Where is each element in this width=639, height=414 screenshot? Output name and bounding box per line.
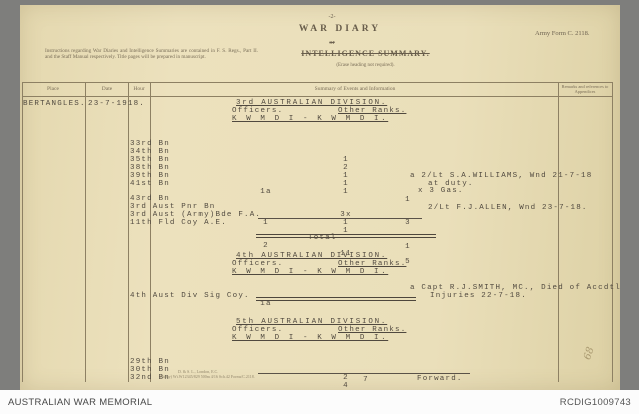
remark-note: a Capt R.J.SMITH, MC., Died of Accdtl	[410, 284, 621, 292]
table-row: 30th Bn 4	[130, 358, 430, 366]
column-header-hour: Hour	[128, 86, 150, 92]
casualty-key-row: K W M D I - K W M D I.	[232, 268, 388, 276]
casualty-key-row: K W M D I - K W M D I.	[232, 115, 388, 123]
column-header-summary: Summary of Events and Information	[250, 86, 460, 92]
entry-place: BERTANGLES.	[23, 100, 86, 108]
remark-note: a 2/Lt S.A.WILLIAMS, Wnd 21-7-18	[410, 172, 592, 180]
table-row: 43rd Bn 3x 3	[130, 187, 430, 195]
archive-footer-bar: AUSTRALIAN WAR MEMORIAL RCDIG1009743	[0, 390, 639, 414]
table-row: 4th Aust Div Sig Coy. 1a	[130, 284, 430, 292]
other-ranks-column-label: Other Ranks.	[338, 260, 406, 268]
officers-column-label: Officers.	[232, 260, 283, 268]
section-title-3rd-division: 3rd AUSTRALIAN DIVISION.	[236, 99, 387, 107]
total-row: Total 2 11 5	[130, 226, 430, 234]
army-form-number: Army Form C. 2118.	[535, 30, 589, 37]
section-title-5th-division: 5th AUSTRALIAN DIVISION.	[236, 318, 387, 326]
carry-forward-value: 7	[346, 376, 386, 384]
form-subtitle-note: (Erase heading not required).	[278, 63, 453, 68]
place-date-divider	[85, 82, 86, 382]
table-row: 38th Bn 1	[130, 156, 430, 164]
total-double-rule	[256, 234, 436, 238]
date-hour-divider	[128, 82, 129, 382]
other-ranks-column-label: Other Ranks.	[338, 326, 406, 334]
page-number: -2-	[312, 14, 352, 20]
table-row: 34th Bn 2	[130, 140, 430, 148]
carry-forward-label: Forward.	[417, 375, 463, 383]
remark-note: 2/Lt F.J.ALLEN, Wnd 23-7-18.	[428, 204, 588, 212]
handwritten-page-mark: 68	[582, 346, 596, 362]
column-header-remarks: Remarks and references to Appendices	[559, 84, 611, 94]
other-ranks-column-label: Other Ranks.	[338, 107, 406, 115]
form-title: WAR DIARY	[255, 24, 425, 34]
table-row: 39th Bn 1 1	[130, 164, 430, 172]
table-row: 3rd Aust (Army)Bde F.A. 1 1	[130, 203, 430, 211]
table-header-underline	[22, 96, 612, 97]
other-ranks-wounded-value: 1	[388, 243, 428, 251]
table-row: 35th Bn 1	[130, 148, 430, 156]
form-or-word: or	[312, 39, 352, 46]
officers-column-label: Officers.	[232, 326, 283, 334]
section-double-rule	[256, 297, 416, 301]
form-instructions: Instructions regarding War Diaries and I…	[45, 48, 258, 60]
remark-note: x 3 Gas.	[418, 187, 464, 195]
section-title-4th-division: 4th AUSTRALIAN DIVISION.	[236, 252, 387, 260]
archive-reference-id: RCDIG1009743	[560, 397, 631, 408]
subtotal-rule	[258, 218, 422, 219]
table-row: 33rd Bn 1	[130, 132, 430, 140]
table-right-border	[612, 82, 613, 382]
summary-remarks-divider	[558, 82, 559, 382]
table-left-border	[22, 82, 23, 382]
casualty-key-row: K W M D I - K W M D I.	[232, 334, 388, 342]
column-header-date: Date	[86, 86, 128, 92]
table-top-border	[22, 82, 612, 83]
archive-source-label: AUSTRALIAN WAR MEMORIAL	[8, 397, 152, 408]
table-row: 29th Bn 2	[130, 350, 430, 358]
total-officers-value: 2	[245, 242, 287, 250]
carry-forward-rule	[258, 373, 470, 374]
table-row: 41st Bn 1a	[130, 172, 430, 180]
column-header-place: Place	[30, 86, 76, 92]
entry-date: 23-7-1918.	[88, 100, 145, 108]
unit-label: 4th Aust Div Sig Coy.	[130, 292, 250, 300]
officers-value: 1a	[245, 300, 287, 308]
printer-imprint-line2: (Army) Wt.W12345/829 500m 4/16 Sch.42 Fo…	[160, 375, 255, 380]
officers-column-label: Officers.	[232, 107, 283, 115]
table-row: 3rd Aust Pnr Bn 1	[130, 195, 430, 203]
remark-note: Injuries 22-7-18.	[430, 292, 527, 300]
form-subtitle: INTELLIGENCE SUMMARY.	[268, 49, 463, 58]
scanned-document-page: -2- WAR DIARY or INTELLIGENCE SUMMARY. (…	[20, 5, 620, 390]
